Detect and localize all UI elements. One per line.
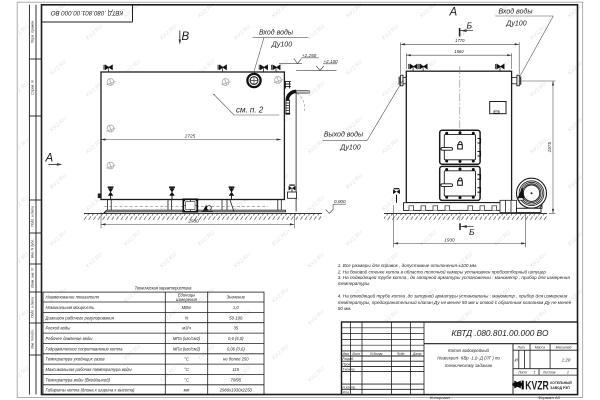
svg-text:70/95: 70/95 (231, 377, 242, 382)
svg-text:Выход воды: Выход воды (324, 131, 364, 139)
svg-text:Лист: Лист (351, 352, 361, 356)
svg-text:1: 1 (534, 371, 536, 375)
svg-text:Значение: Значение (227, 295, 246, 300)
svg-text:Ду100: Ду100 (271, 42, 292, 49)
svg-text:115: 115 (232, 367, 239, 372)
svg-text:Температура уходящих газов: Температура уходящих газов (46, 357, 106, 362)
svg-text:Подп. и дата: Подп. и дата (31, 206, 35, 227)
svg-text:Копировал: Копировал (430, 395, 451, 400)
svg-text:Инв. N подл.: Инв. N подл. (31, 329, 35, 348)
svg-text:температуры, предохранительный: температуры, предохранительный клапан Ду… (338, 299, 572, 305)
svg-text:Перв. примен.: Перв. примен. (31, 20, 35, 43)
svg-text:Утв.: Утв. (343, 391, 350, 395)
svg-text:0,6 (6,0): 0,6 (6,0) (228, 336, 244, 341)
svg-text:1770: 1770 (455, 38, 465, 43)
svg-text:МПа (кгс/см2): МПа (кгс/см2) (173, 346, 201, 351)
svg-text:Наименование показателя: Наименование показателя (46, 295, 100, 300)
svg-text:см. п. 2: см. п. 2 (236, 106, 264, 115)
svg-text:Габариты котла (длина х ширина: Габариты котла (длина х ширина х высота) (46, 388, 136, 393)
svg-text:N докум.: N докум. (370, 352, 383, 356)
svg-text:Диапазон рабочего регулировани: Диапазон рабочего регулирования (45, 315, 115, 320)
svg-text:м3/ч: м3/ч (182, 326, 191, 331)
svg-text:А: А (45, 153, 54, 165)
svg-text:KVZR: KVZR (525, 380, 549, 392)
svg-text:1930: 1930 (444, 237, 455, 242)
svg-text:1560: 1560 (454, 49, 464, 54)
svg-text:Т.контр.: Т.контр. (343, 368, 356, 372)
svg-text:МПа (кгс/см2): МПа (кгс/см2) (173, 336, 201, 341)
svg-text:Масштаб: Масштаб (556, 346, 572, 350)
svg-text:техническому заданию: техническому заданию (445, 363, 493, 368)
svg-text:Разраб.: Разраб. (343, 357, 355, 361)
svg-text:Котел водогрейный: Котел водогрейный (448, 348, 489, 353)
svg-text:Формат А3: Формат А3 (538, 395, 561, 400)
svg-text:Heatexpert- КВр -1,0- Д (ЛТ ): Heatexpert- КВр -1,0- Д (ЛТ ) по (437, 356, 500, 361)
svg-text:Лист: Лист (517, 371, 527, 375)
svg-text:Подп. и дата: Подп. и дата (31, 297, 35, 318)
svg-text:Расход воды: Расход воды (46, 326, 71, 331)
svg-text:2725: 2725 (184, 134, 196, 139)
svg-text:Пров.: Пров. (343, 362, 352, 366)
svg-text:Инв. N дубл.: Инв. N дубл. (31, 239, 35, 258)
svg-text:Б: Б (469, 227, 475, 237)
svg-text:Масса: Масса (535, 346, 545, 350)
svg-text:2980: 2980 (187, 218, 199, 223)
svg-text:Вход воды: Вход воды (259, 29, 294, 37)
svg-text:Ду100: Ду100 (339, 145, 360, 152)
svg-text:измерения: измерения (176, 297, 198, 302)
svg-text:Максимальная рабочая температу: Максимальная рабочая температура воды (46, 367, 132, 372)
svg-text:2980х1930х2250: 2980х1930х2250 (219, 388, 253, 393)
svg-text:50 мм.: 50 мм. (338, 306, 352, 311)
svg-text:МВт: МВт (182, 305, 192, 310)
svg-text:1:20: 1:20 (562, 358, 571, 363)
svg-text:Подп.: Подп. (397, 352, 406, 356)
svg-text:Номинальная мощность: Номинальная мощность (46, 305, 95, 310)
svg-text:А: А (449, 7, 458, 19)
svg-text:50-100: 50-100 (229, 315, 243, 320)
svg-text:Взам. инв. N: Взам. инв. N (31, 268, 35, 288)
svg-text:1975: 1975 (547, 142, 552, 153)
svg-text:В: В (182, 31, 190, 43)
svg-text:+2.100: +2.100 (324, 59, 339, 64)
svg-text:Температура воды (Вход/выход): Температура воды (Вход/выход) (46, 377, 111, 382)
svg-text:Гидравлическое сопротивление к: Гидравлическое сопротивление котла (46, 346, 124, 351)
svg-text:Справ. N: Справ. N (31, 80, 35, 95)
svg-text:Техническая характеристика: Техническая характеристика (135, 285, 192, 290)
svg-text:2: 2 (566, 371, 569, 375)
svg-text:35: 35 (233, 326, 238, 331)
svg-text:Дата: Дата (412, 352, 422, 356)
svg-text:+2.250: +2.250 (302, 53, 317, 58)
svg-text:КВТД .080.801.00.000 ВО: КВТД .080.801.00.000 ВО (51, 9, 124, 16)
svg-text:0.000: 0.000 (334, 199, 346, 204)
svg-text:температуры.: температуры. (338, 281, 371, 286)
svg-text:мм: мм (184, 388, 190, 393)
svg-text:Вход воды: Вход воды (499, 8, 534, 16)
svg-text:КОТЕЛЬНЫЙ: КОТЕЛЬНЫЙ (550, 381, 572, 385)
svg-text:3. На подводящей трубе котла ,: 3. На подводящей трубе котла , до запорн… (338, 274, 571, 280)
svg-text:0,06 (0,6): 0,06 (0,6) (227, 346, 246, 351)
svg-text:не более 250: не более 250 (223, 357, 249, 362)
svg-text:1,0: 1,0 (233, 305, 239, 310)
svg-text:Изм.: Изм. (343, 352, 350, 356)
svg-text:Листов: Листов (542, 371, 556, 375)
svg-text:КВТД .080.801.00.000 ВО: КВТД .080.801.00.000 ВО (452, 328, 550, 338)
svg-text:4. На отводящей трубе котла ,д: 4. На отводящей трубе котла ,до запорной… (338, 293, 568, 299)
svg-text:%: % (185, 315, 189, 320)
svg-text:1. Все размеры для справок , д: 1. Все размеры для справок , допустимые … (338, 263, 478, 268)
svg-text:Лит.: Лит. (517, 346, 526, 350)
svg-text:Ду100: Ду100 (505, 21, 526, 28)
svg-text:2. На боковой стенке котла в о: 2. На боковой стенке котла в области топ… (337, 268, 547, 274)
svg-text:ЗАВОД РЭП: ЗАВОД РЭП (550, 386, 570, 390)
svg-text:Н.контр.: Н.контр. (343, 385, 357, 389)
svg-text:Б: Б (467, 21, 473, 31)
svg-text:Рабочее давление воды: Рабочее давление воды (46, 336, 93, 341)
